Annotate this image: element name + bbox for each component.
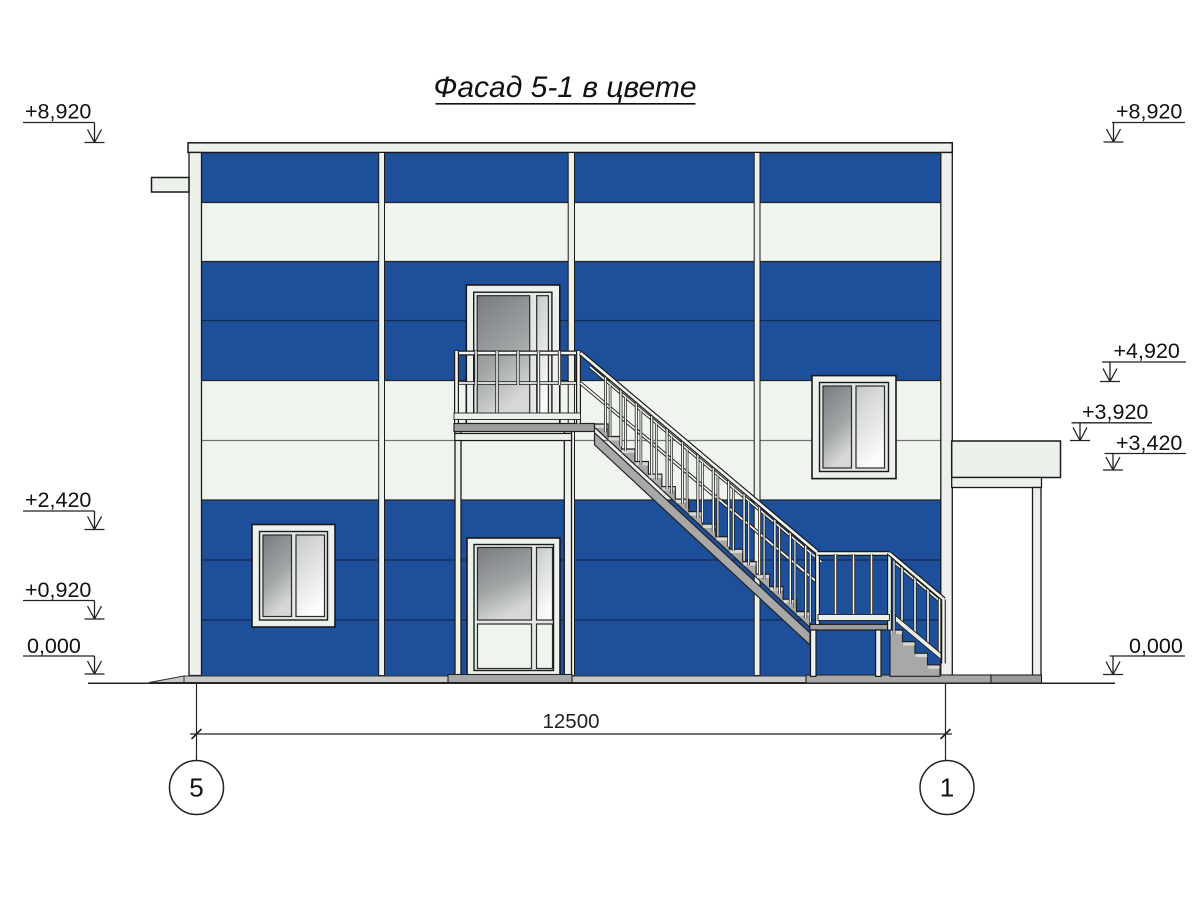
svg-text:+4,920: +4,920: [1114, 339, 1180, 363]
svg-text:+3,920: +3,920: [1082, 400, 1148, 424]
svg-text:12500: 12500: [542, 710, 599, 733]
svg-text:+3,420: +3,420: [1116, 431, 1182, 455]
svg-text:+8,920: +8,920: [25, 100, 91, 124]
svg-text:5: 5: [189, 773, 203, 803]
svg-text:+8,920: +8,920: [1116, 100, 1182, 124]
svg-text:+0,920: +0,920: [25, 578, 91, 602]
svg-text:0,000: 0,000: [1129, 634, 1183, 658]
svg-text:Фасад 5-1 в цвете: Фасад 5-1 в цвете: [434, 71, 697, 104]
svg-text:1: 1: [940, 773, 954, 803]
svg-text:0,000: 0,000: [27, 634, 81, 658]
svg-text:+2,420: +2,420: [25, 488, 91, 512]
